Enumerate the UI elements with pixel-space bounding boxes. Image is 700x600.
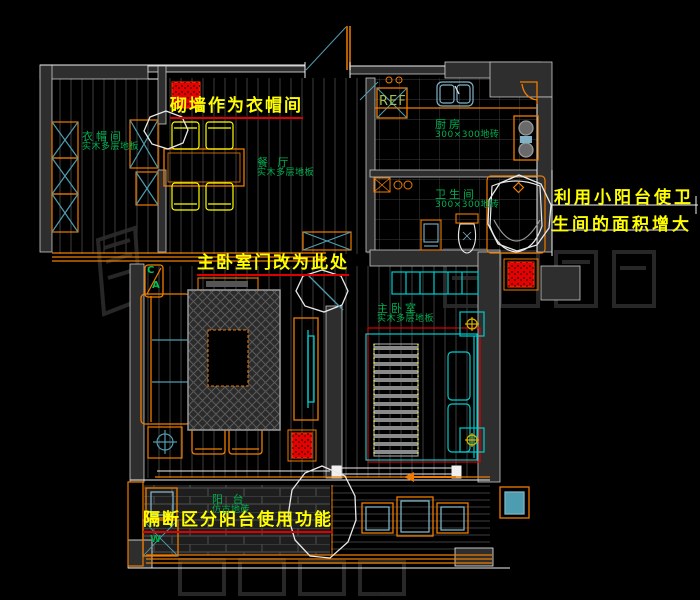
cad-floorplan-canvas: 砌墙作为衣帽间 主卧室门改为此处 隔断区分阳台使用功能 利用小阳台使卫 生间的面…: [0, 0, 700, 600]
room-floor: 实木多层地板: [82, 143, 139, 152]
annotation-master-door: 主卧室门改为此处: [197, 255, 349, 276]
room-label-balcony: 阳 台 仿古地砖: [212, 494, 250, 515]
ac-unit: [500, 487, 529, 518]
revision-marker-2: [504, 259, 538, 290]
coffee-table: [208, 330, 248, 386]
room-name: 衣帽间: [82, 131, 139, 143]
fridge-label: REF: [379, 95, 407, 109]
room-label-bathroom: 卫生间 300×300地砖: [435, 189, 499, 210]
room-floor: 300×300地砖: [435, 201, 499, 210]
annotation-balcony: 隔断区分阳台使用功能: [143, 512, 333, 533]
room-name: 卫生间: [435, 189, 499, 201]
room-name: 餐 厅: [257, 157, 314, 169]
revision-marker-3: [288, 430, 316, 461]
elevation-label-top: C: [147, 266, 154, 277]
room-label-master-bedroom: 主卧室 实木多层地板: [377, 303, 434, 324]
room-floor: 仿古地砖: [212, 506, 250, 515]
room-floor: 实木多层地板: [257, 169, 314, 178]
room-name: 厨房: [435, 119, 499, 131]
rug: [188, 290, 280, 430]
washer-label: W: [150, 535, 161, 546]
annotation-bathroom-line1: 利用小阳台使卫: [554, 190, 694, 208]
room-name: 主卧室: [377, 303, 434, 315]
room-label-dining: 餐 厅 实木多层地板: [257, 157, 314, 178]
room-floor: 300×300地砖: [435, 131, 499, 140]
room-floor: 实木多层地板: [377, 315, 434, 324]
annotation-cloakroom: 砌墙作为衣帽间: [170, 98, 303, 119]
floorplan-drawing: [0, 0, 700, 600]
annotation-bathroom-line2: 生间的面积增大: [552, 217, 692, 235]
elevation-label-bottom: A: [152, 281, 160, 292]
room-label-kitchen: 厨房 300×300地砖: [435, 119, 499, 140]
room-name: 阳 台: [212, 494, 250, 506]
room-label-cloakroom: 衣帽间 实木多层地板: [82, 131, 139, 152]
